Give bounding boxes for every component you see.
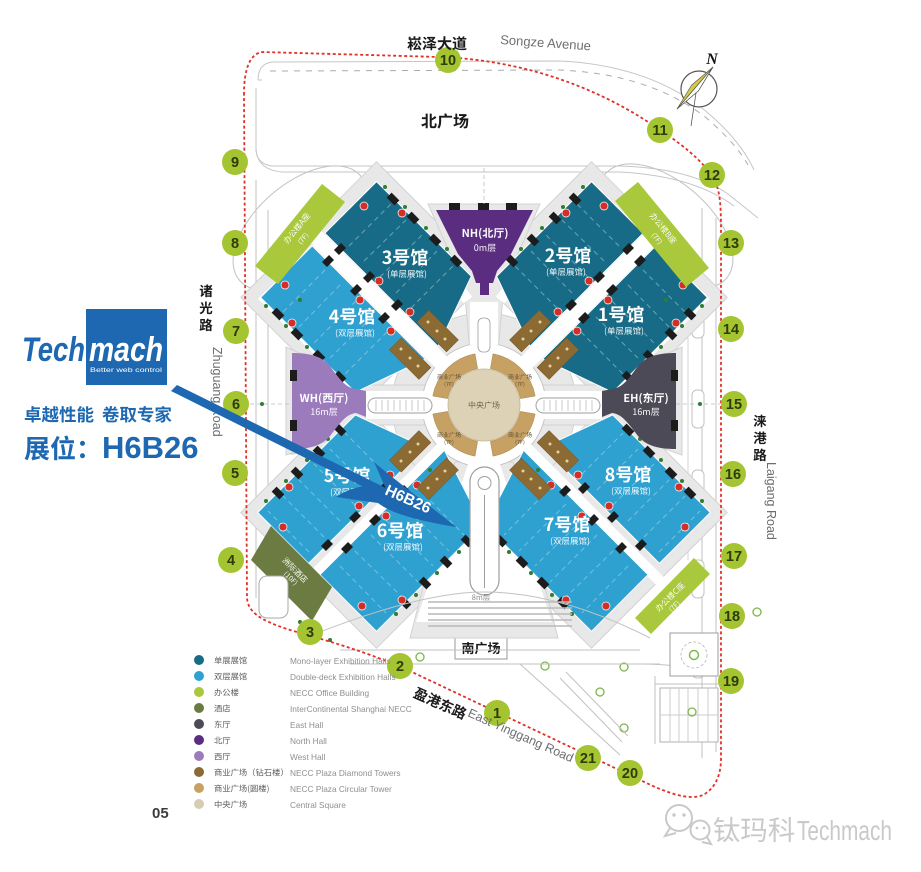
svg-text:InterContinental Shanghai NECC: InterContinental Shanghai NECC: [290, 704, 412, 714]
svg-text:15: 15: [726, 397, 742, 413]
svg-text:4: 4: [227, 553, 235, 569]
svg-text:17: 17: [726, 549, 742, 565]
svg-text:14: 14: [723, 322, 739, 338]
svg-text:20: 20: [622, 766, 638, 782]
svg-text:Tech: Tech: [22, 331, 85, 369]
svg-text:18: 18: [724, 609, 740, 625]
svg-text:12: 12: [704, 168, 720, 184]
svg-text:NECC Plaza Diamond Towers: NECC Plaza Diamond Towers: [290, 768, 401, 778]
svg-text:NECC Plaza Circular Tower: NECC Plaza Circular Tower: [290, 784, 392, 794]
svg-text:Double-deck Exhibition Halls: Double-deck Exhibition Halls: [290, 672, 396, 682]
svg-text:19: 19: [723, 674, 739, 690]
svg-text:NECC Office Building: NECC Office Building: [290, 688, 370, 698]
svg-text:8: 8: [231, 236, 239, 252]
svg-text:05: 05: [152, 805, 169, 822]
svg-text:North Hall: North Hall: [290, 736, 327, 746]
svg-text:2: 2: [396, 659, 404, 675]
svg-text:Better web control: Better web control: [90, 367, 163, 374]
svg-text:11: 11: [652, 123, 667, 139]
svg-text:N: N: [705, 51, 719, 68]
svg-text:21: 21: [580, 751, 596, 767]
svg-text:H6B26: H6B26: [102, 430, 199, 465]
svg-text:Central Square: Central Square: [290, 800, 346, 810]
svg-text:West Hall: West Hall: [290, 752, 326, 762]
svg-text:13: 13: [723, 236, 739, 252]
svg-text:5: 5: [231, 466, 239, 482]
svg-text:3: 3: [306, 625, 314, 641]
svg-text:6: 6: [232, 397, 240, 413]
svg-text:Mono-layer Exhibition Halls: Mono-layer Exhibition Halls: [290, 656, 391, 666]
svg-text:Laigang Road: Laigang Road: [764, 462, 778, 540]
svg-text:7: 7: [232, 324, 240, 340]
svg-text:9: 9: [231, 155, 239, 171]
svg-text:Zhuguang Road: Zhuguang Road: [210, 347, 224, 437]
svg-text:16: 16: [725, 467, 741, 483]
svg-text:Techmach: Techmach: [797, 815, 892, 846]
svg-text:mach: mach: [89, 331, 163, 369]
svg-text:10: 10: [440, 53, 456, 69]
svg-text:East Hall: East Hall: [290, 720, 323, 730]
